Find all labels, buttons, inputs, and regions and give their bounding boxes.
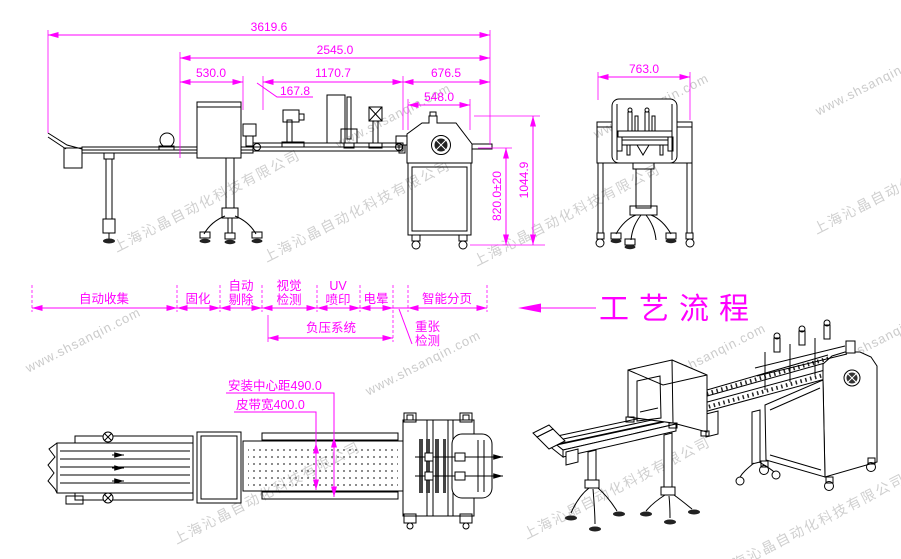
drawing-svg: www.shsanqin.com www.shsanqin.com www.sh… [0, 0, 901, 559]
stage-label-collect: 自动收集 [79, 291, 130, 306]
dim-1170: 1170.7 [315, 66, 351, 80]
dim-belt-height: 820.0±20 [490, 171, 504, 221]
stage-label-uv-2: 喷印 [325, 293, 350, 307]
stage-label-corona: 电晕 [363, 292, 388, 306]
vacuum-system-label: 负压系统 [306, 321, 356, 335]
watermark-text: www.shsanqin.com [22, 304, 143, 376]
stage-label-vision-2: 检测 [276, 292, 301, 307]
stage-label-uv-1: UV [329, 279, 347, 293]
process-flow-title: 工艺流程 [599, 292, 759, 327]
stage-label-paging: 智能分页 [422, 291, 472, 306]
dim-167: 167.8 [280, 84, 310, 98]
dimension-layer: 3619.6 2545.0 530.0 1170.7 676.5 167.8 5… [48, 20, 690, 497]
watermark-text: www.shsanqin.com [812, 47, 901, 119]
stage-label-reject-1: 自动 [228, 279, 253, 293]
plan-view [48, 413, 503, 529]
double-sheet-label-2: 检测 [415, 333, 440, 348]
dim-center-distance: 安装中心距490.0 [228, 378, 322, 393]
watermark-text: 上海沁晶自动化科技有限公司 [261, 156, 454, 265]
watermark-text: 上海沁晶自动化科技有限公司 [521, 433, 714, 542]
dim-676: 676.5 [431, 66, 461, 80]
dim-overall-length: 3619.6 [251, 20, 288, 34]
double-sheet-label-1: 重张 [415, 319, 441, 334]
flow-arrow-icon [518, 304, 541, 313]
dim-line-length: 2545.0 [317, 43, 354, 57]
watermark-text: 上海沁晶自动化科技有限公司 [111, 146, 304, 255]
dim-548: 548.0 [424, 90, 454, 104]
cad-drawing-sheet: www.shsanqin.com www.shsanqin.com www.sh… [0, 0, 901, 559]
dim-machine-height: 1044.9 [517, 161, 531, 198]
dim-belt-width: 皮带宽400.0 [236, 397, 305, 412]
stage-label-vision-1: 视觉 [276, 278, 301, 293]
dim-front-width: 763.0 [629, 62, 659, 76]
stage-label-reject-2: 剔除 [228, 292, 254, 307]
dim-530: 530.0 [196, 66, 226, 80]
stage-label-cure: 固化 [185, 292, 211, 306]
process-flow: 自动收集 固化 自动 剔除 视觉 检测 UV 喷印 电晕 智能分页 负压系统 重… [32, 278, 759, 348]
watermark-text: 上海沁晶自动化科技有限公司 [811, 128, 901, 237]
